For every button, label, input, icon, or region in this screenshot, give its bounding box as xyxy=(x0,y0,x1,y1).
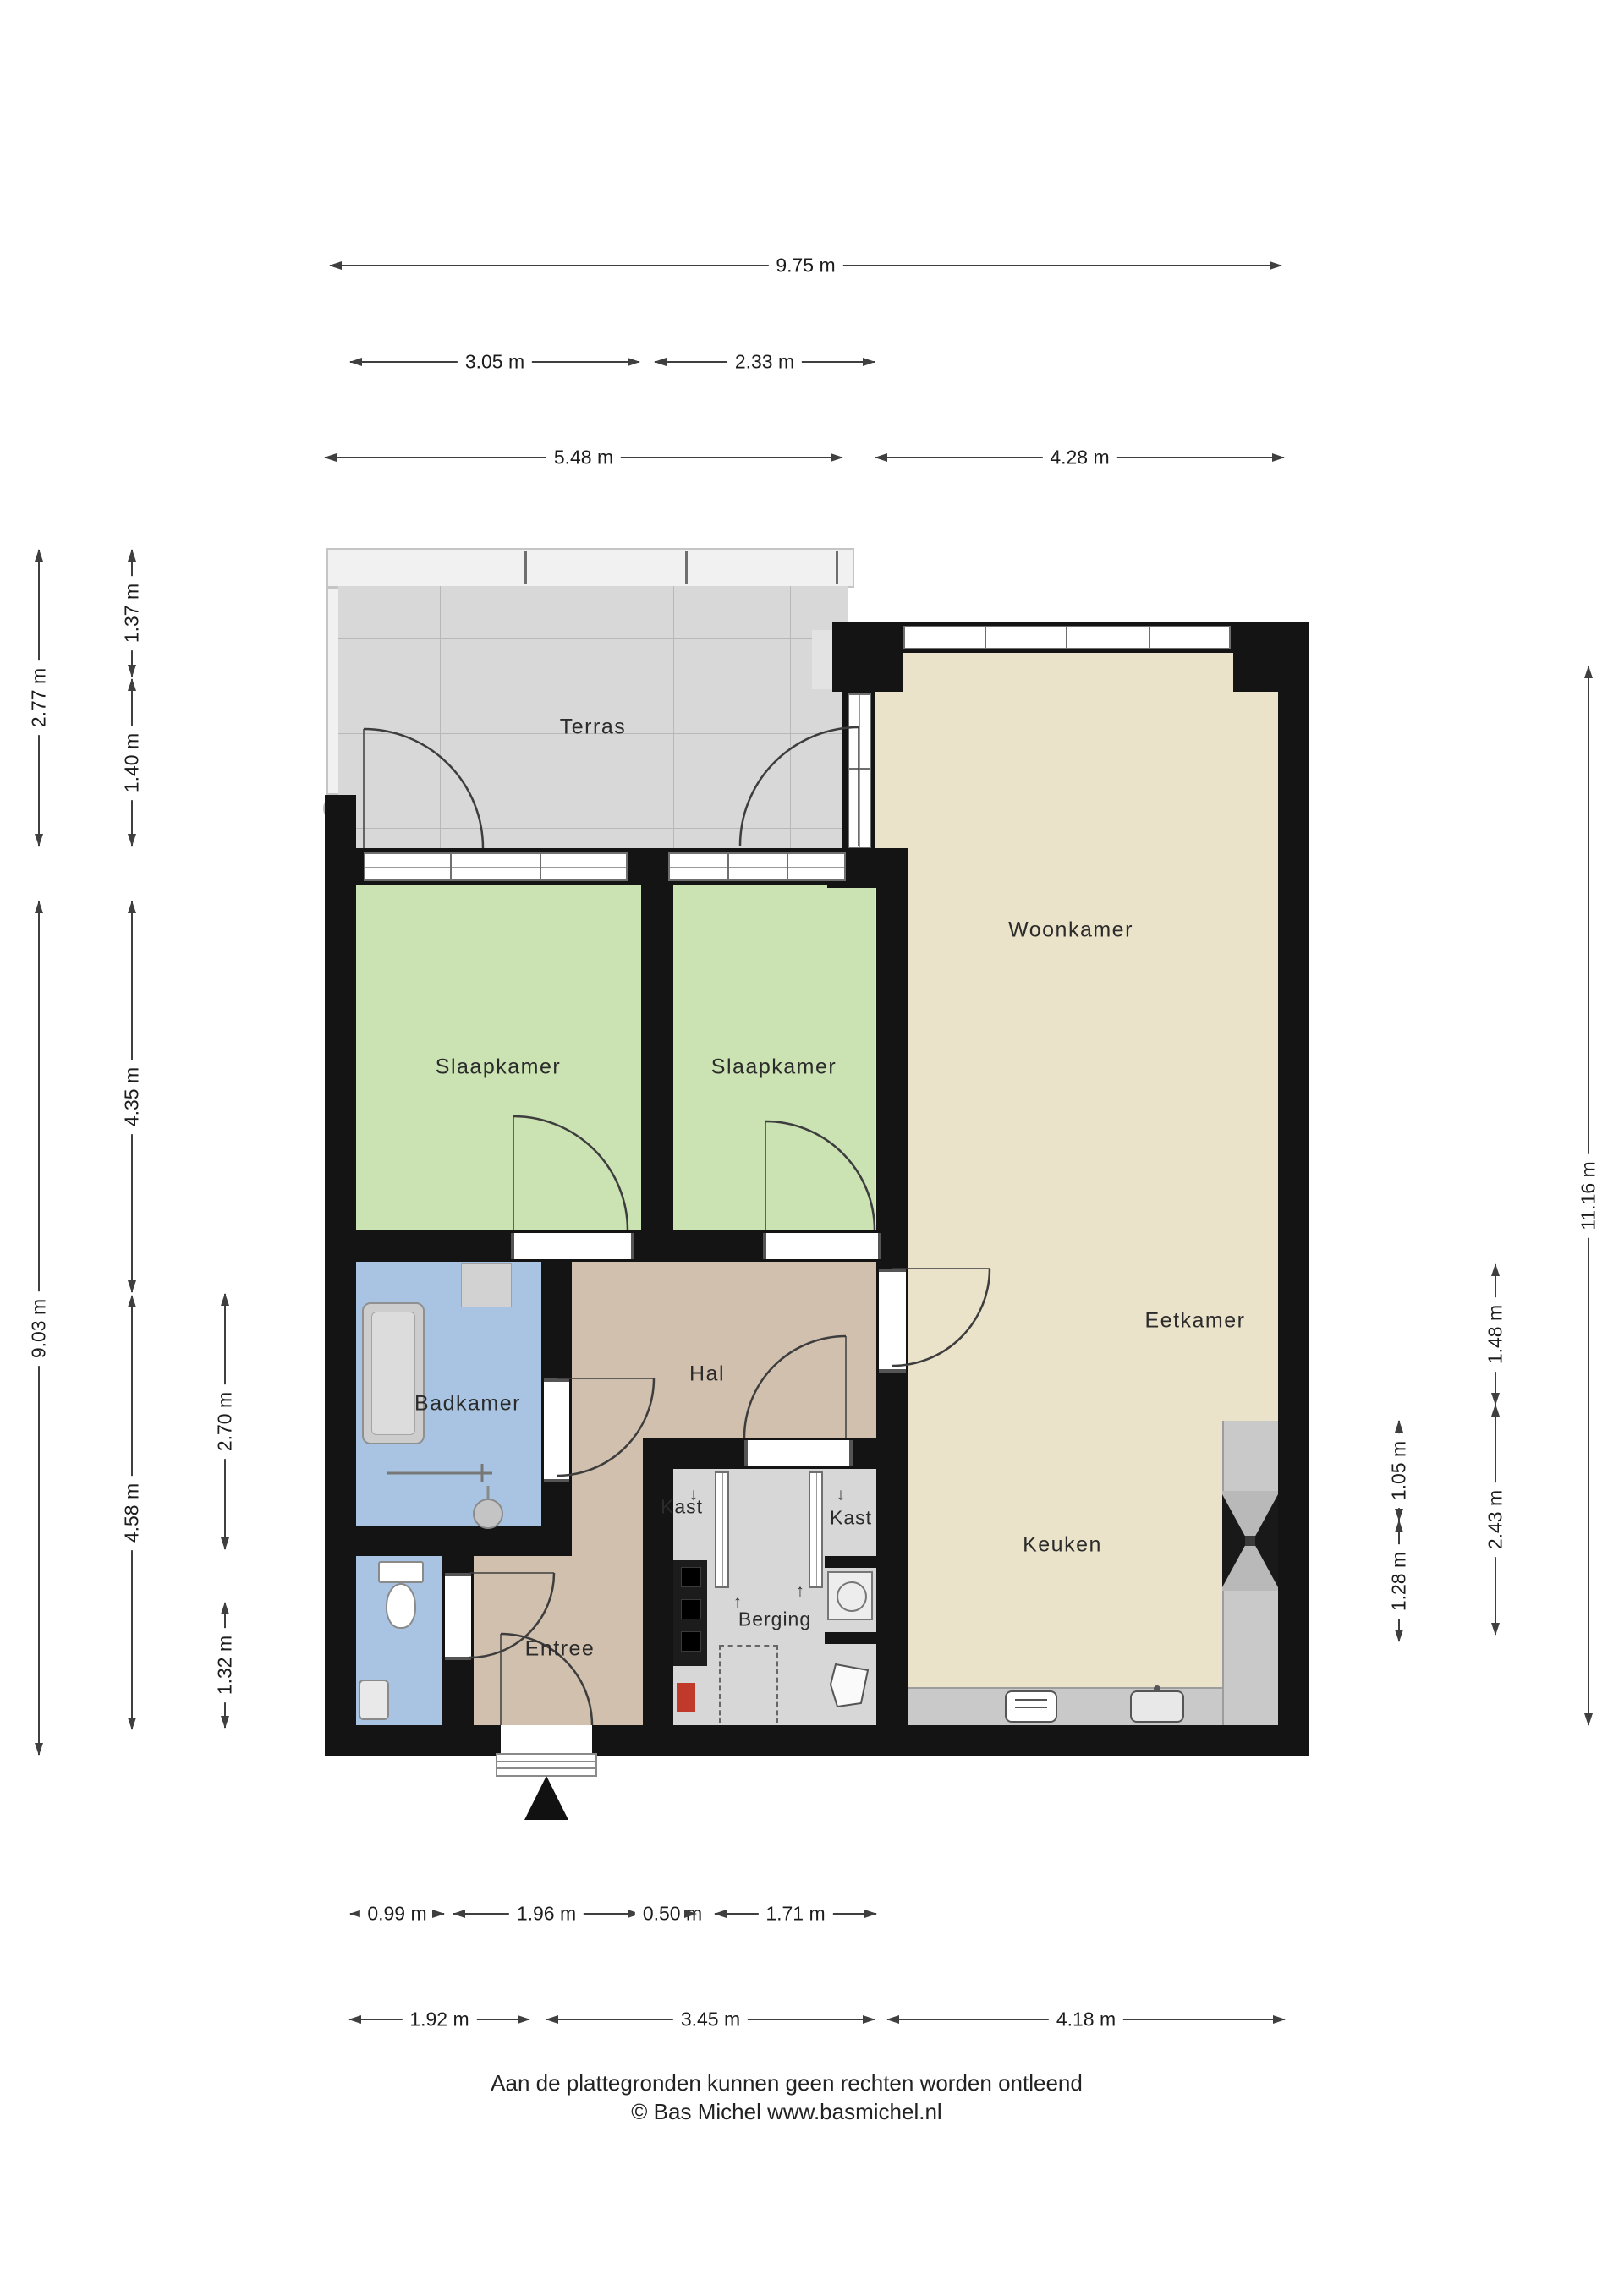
sliding-door-track-left xyxy=(715,1471,729,1588)
hand-basin-icon xyxy=(359,1680,389,1720)
label-keuken: Keuken xyxy=(1023,1533,1102,1558)
label-entree: Entree xyxy=(525,1637,595,1662)
coat-rack-icon xyxy=(677,1683,695,1712)
slide-arrow-icon: ↑ xyxy=(796,1582,804,1602)
shower-drain-icon xyxy=(474,1499,502,1528)
floorplan-page: 9.75 m 3.05 m 2.33 m 5.48 m 4.28 m 2.77 … xyxy=(0,0,1624,2296)
label-kast-links: Kast xyxy=(661,1496,703,1519)
label-kast-rechts: Kast xyxy=(830,1507,872,1530)
dim-bottom-b: 1.96 m xyxy=(453,1913,639,1915)
kitchen-sink-icon xyxy=(1130,1690,1184,1723)
washing-machine-icon xyxy=(827,1571,873,1620)
boiler-icon xyxy=(831,1664,868,1707)
label-eetkamer: Eetkamer xyxy=(1145,1309,1246,1334)
label-badkamer: Badkamer xyxy=(414,1392,521,1417)
door-arcs-overlay xyxy=(0,0,1624,2296)
dim-bottom-a: 0.99 m xyxy=(350,1913,444,1915)
dim-bottom-e: 1.92 m xyxy=(349,2019,529,2020)
bathtub-icon xyxy=(362,1302,425,1444)
toilet-bowl-icon xyxy=(386,1583,416,1629)
label-hal: Hal xyxy=(689,1362,725,1387)
disclaimer-text: Aan de plattegronden kunnen geen rechten… xyxy=(491,2070,1083,2096)
storage-dashed-outline xyxy=(719,1645,778,1723)
cooktop-icon xyxy=(1005,1690,1057,1723)
dim-bottom-g: 4.18 m xyxy=(887,2019,1285,2020)
sliding-door-track-right xyxy=(809,1471,823,1588)
slide-arrow-icon: ↓ xyxy=(837,1486,845,1505)
bathroom-cabinet-icon xyxy=(461,1263,512,1307)
dim-bottom-d: 1.71 m xyxy=(715,1913,876,1915)
label-berging: Berging xyxy=(738,1608,811,1631)
label-slaapkamer-rechts: Slaapkamer xyxy=(711,1055,837,1080)
copyright-text: © Bas Michel www.basmichel.nl xyxy=(631,2099,941,2125)
dim-bottom-f: 3.45 m xyxy=(546,2019,875,2020)
label-slaapkamer-links: Slaapkamer xyxy=(436,1055,561,1080)
label-woonkamer: Woonkamer xyxy=(1008,918,1133,943)
label-terras: Terras xyxy=(560,715,626,740)
toilet-tank-icon xyxy=(378,1561,424,1583)
meter-cupboard-panel xyxy=(673,1560,707,1666)
dim-bottom-c: 0.50 m xyxy=(649,1913,696,1915)
entrance-arrow-icon xyxy=(524,1776,568,1820)
